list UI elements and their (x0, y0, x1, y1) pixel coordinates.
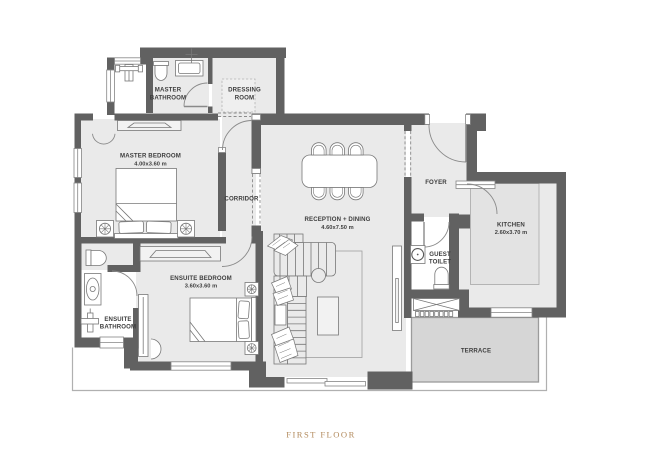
svg-text:MASTER BEDROOM: MASTER BEDROOM (120, 153, 181, 160)
svg-text:ROOM: ROOM (235, 95, 254, 102)
svg-text:GUEST: GUEST (429, 251, 451, 258)
svg-text:4.60x7.50 m: 4.60x7.50 m (321, 225, 354, 231)
svg-text:ENSUITE: ENSUITE (104, 316, 131, 323)
svg-text:RECEPTION + DINING: RECEPTION + DINING (305, 216, 371, 223)
svg-text:FOYER: FOYER (425, 179, 447, 186)
svg-text:MASTER: MASTER (155, 87, 182, 94)
svg-text:CORRIDOR: CORRIDOR (224, 196, 259, 203)
svg-text:BATHROOM: BATHROOM (150, 95, 186, 102)
svg-text:KITCHEN: KITCHEN (497, 222, 525, 229)
svg-text:2.60x3.70 m: 2.60x3.70 m (495, 230, 528, 236)
svg-text:FIRST FLOOR: FIRST FLOOR (286, 430, 356, 440)
svg-text:4.00x3.60 m: 4.00x3.60 m (134, 162, 167, 168)
svg-text:ENSUITE BEDROOM: ENSUITE BEDROOM (170, 275, 232, 282)
svg-text:BATHROOM: BATHROOM (100, 324, 136, 331)
svg-text:3.60x3.60 m: 3.60x3.60 m (185, 284, 218, 290)
svg-text:DRESSING: DRESSING (228, 87, 261, 94)
svg-text:TOILET: TOILET (429, 259, 451, 266)
svg-text:TERRACE: TERRACE (461, 348, 491, 355)
